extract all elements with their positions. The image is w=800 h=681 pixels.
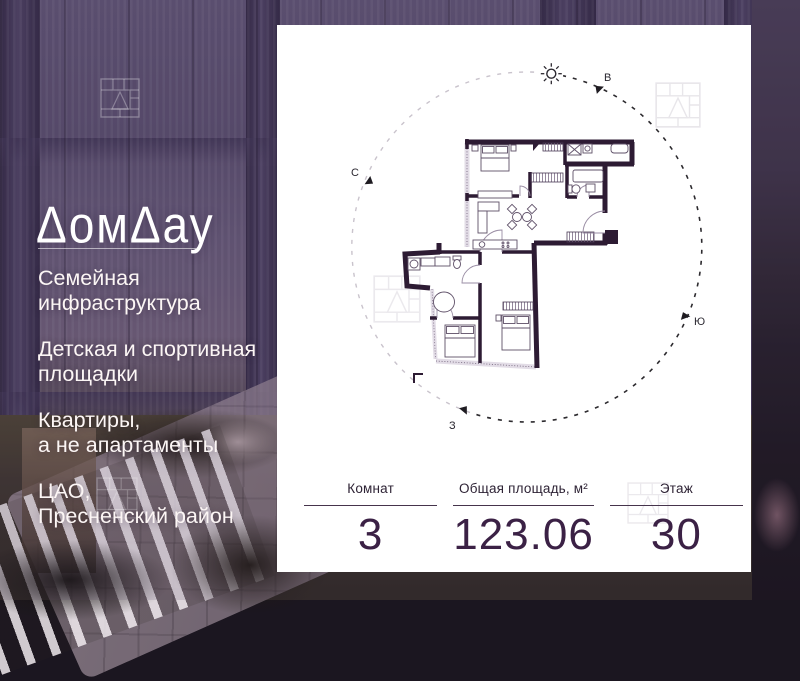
entry-wall-bump [605, 230, 618, 244]
feature-line: площадки [38, 362, 256, 387]
dresser-icon [478, 191, 512, 198]
plan-closets [503, 143, 594, 310]
sofa-icon [478, 202, 499, 233]
feature-line: ЦАО, [38, 479, 256, 504]
toilet-icon [568, 185, 580, 193]
sun-path-circle [352, 72, 702, 422]
apartment-card: В С Ю З [277, 25, 751, 572]
bed-icon [445, 325, 475, 357]
feature-item: ЦАО, Пресненский район [38, 479, 256, 529]
sink-icon [586, 184, 595, 192]
feature-line: а не апартаменты [38, 433, 256, 458]
compass-label-west: З [449, 420, 456, 432]
closet [543, 143, 563, 151]
closet [531, 173, 563, 182]
compass-label-east: В [604, 72, 611, 84]
nightstand-icon [496, 315, 501, 321]
feature-line: Квартиры, [38, 408, 256, 433]
feature-line: инфраструктура [38, 291, 256, 316]
stat-rooms: Комнат 3 [304, 481, 437, 560]
stat-area: Общая площадь, м² 123.06 [453, 481, 594, 560]
feature-item: Семейная инфраструктура [38, 266, 256, 316]
stat-area-value: 123.06 [453, 510, 594, 560]
stat-floor-label: Этаж [610, 481, 743, 506]
sun-icon [539, 62, 563, 86]
nightstand-icon [511, 145, 516, 151]
washer-icon [583, 144, 592, 153]
bed-icon [502, 315, 530, 350]
bed-icon [481, 145, 509, 171]
feature-list: Семейная инфраструктура Детская и спорти… [38, 266, 256, 550]
sink-icon [435, 257, 450, 266]
washer-icon [408, 258, 420, 270]
dining-set-icon [507, 204, 536, 229]
stat-rooms-value: 3 [304, 510, 437, 560]
floor-plan: В С Ю З [277, 25, 751, 480]
compass-arrow-south [679, 311, 690, 320]
feature-item: Квартиры, а не апартаменты [38, 408, 256, 458]
corner-mark [414, 374, 423, 383]
feature-line: Детская и спортивная [38, 337, 256, 362]
stats-row: Комнат 3 Общая площадь, м² 123.06 Этаж 3… [277, 481, 751, 560]
door-entrance [583, 211, 605, 233]
oval-bathtub-icon [434, 292, 455, 312]
feature-item: Детская и спортивная площадки [38, 337, 256, 387]
promo-screenshot: { "brand": { "name": "ДомДау", "logo_dis… [0, 0, 800, 600]
counter-icon [421, 258, 435, 266]
brand-watermark-icon [100, 78, 140, 118]
feature-line: Пресненский район [38, 504, 256, 529]
stat-area-label: Общая площадь, м² [453, 481, 594, 506]
nightstand-icon [472, 145, 478, 151]
bathtub-icon [573, 170, 603, 182]
compass-label-north: С [351, 167, 359, 179]
sink-icon [611, 144, 628, 153]
feature-line: Семейная [38, 266, 256, 291]
logo-divider [38, 248, 196, 249]
stat-floor: Этаж 30 [610, 481, 743, 560]
compass-label-south: Ю [694, 316, 705, 328]
closet [503, 302, 533, 310]
closet [567, 232, 594, 242]
brand-logo: ΔомΔау [36, 196, 215, 255]
compass-arrow-west [459, 403, 471, 415]
toilet-icon [453, 256, 461, 269]
kitchen-counter-icon [473, 240, 517, 249]
door-bathroom3 [462, 265, 480, 283]
shower-icon [568, 144, 581, 155]
compass-arrow-east [592, 82, 604, 94]
stat-floor-value: 30 [610, 510, 743, 560]
stat-rooms-label: Комнат [304, 481, 437, 506]
